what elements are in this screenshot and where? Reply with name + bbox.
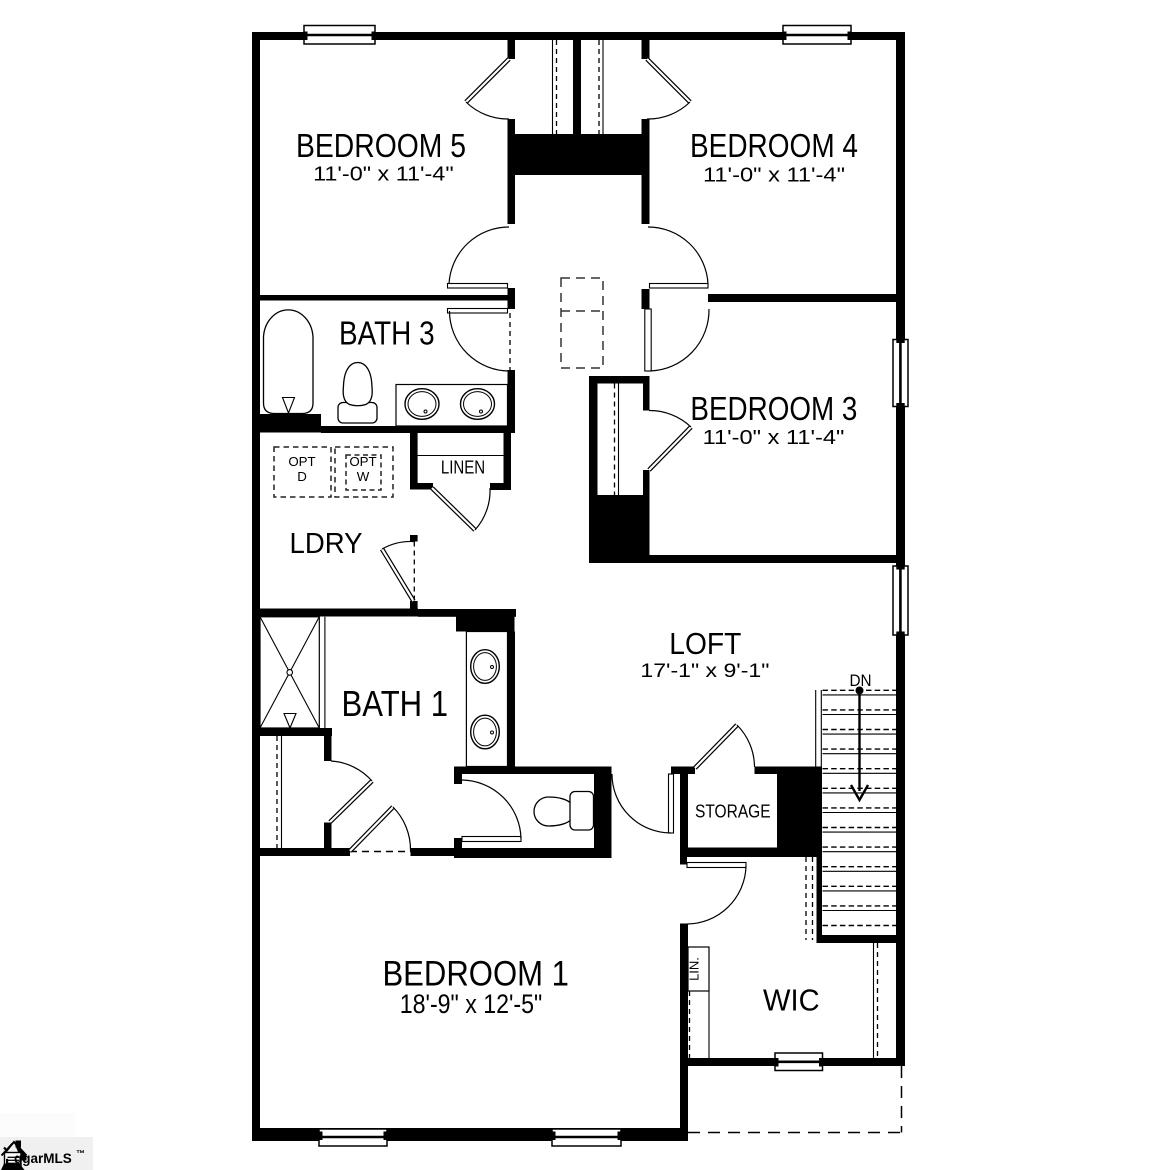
svg-text:W: W bbox=[357, 469, 370, 484]
svg-text:OPT: OPT bbox=[288, 454, 315, 469]
svg-text:11'-0" x 11'-4": 11'-0" x 11'-4" bbox=[703, 426, 845, 449]
svg-text:WIC: WIC bbox=[763, 984, 820, 1017]
svg-text:STORAGE: STORAGE bbox=[695, 801, 771, 822]
svg-text:BEDROOM 1: BEDROOM 1 bbox=[382, 954, 569, 993]
svg-text:BATH 3: BATH 3 bbox=[339, 315, 435, 352]
svg-text:ggarMLS: ggarMLS bbox=[14, 1151, 72, 1166]
svg-text:DN: DN bbox=[849, 671, 871, 690]
svg-text:BEDROOM 5: BEDROOM 5 bbox=[296, 127, 466, 164]
svg-text:LIN.: LIN. bbox=[687, 957, 702, 981]
svg-text:11'-0" x 11'-4": 11'-0" x 11'-4" bbox=[703, 164, 845, 186]
svg-text:OPT: OPT bbox=[349, 454, 376, 469]
svg-text:18'-9" x 12'-5": 18'-9" x 12'-5" bbox=[400, 989, 543, 1019]
svg-text:BEDROOM 3: BEDROOM 3 bbox=[690, 391, 857, 428]
svg-text:17'-1" x 9'-1": 17'-1" x 9'-1" bbox=[640, 660, 769, 682]
svg-text:LINEN: LINEN bbox=[441, 457, 485, 478]
svg-text:BEDROOM 4: BEDROOM 4 bbox=[690, 127, 858, 164]
svg-text:BATH 1: BATH 1 bbox=[342, 683, 449, 724]
svg-text:™: ™ bbox=[76, 1149, 85, 1159]
svg-text:LOFT: LOFT bbox=[669, 627, 741, 661]
svg-text:LDRY: LDRY bbox=[290, 528, 363, 560]
svg-text:D: D bbox=[297, 469, 307, 484]
svg-text:11'-0" x 11'-4": 11'-0" x 11'-4" bbox=[313, 163, 454, 185]
